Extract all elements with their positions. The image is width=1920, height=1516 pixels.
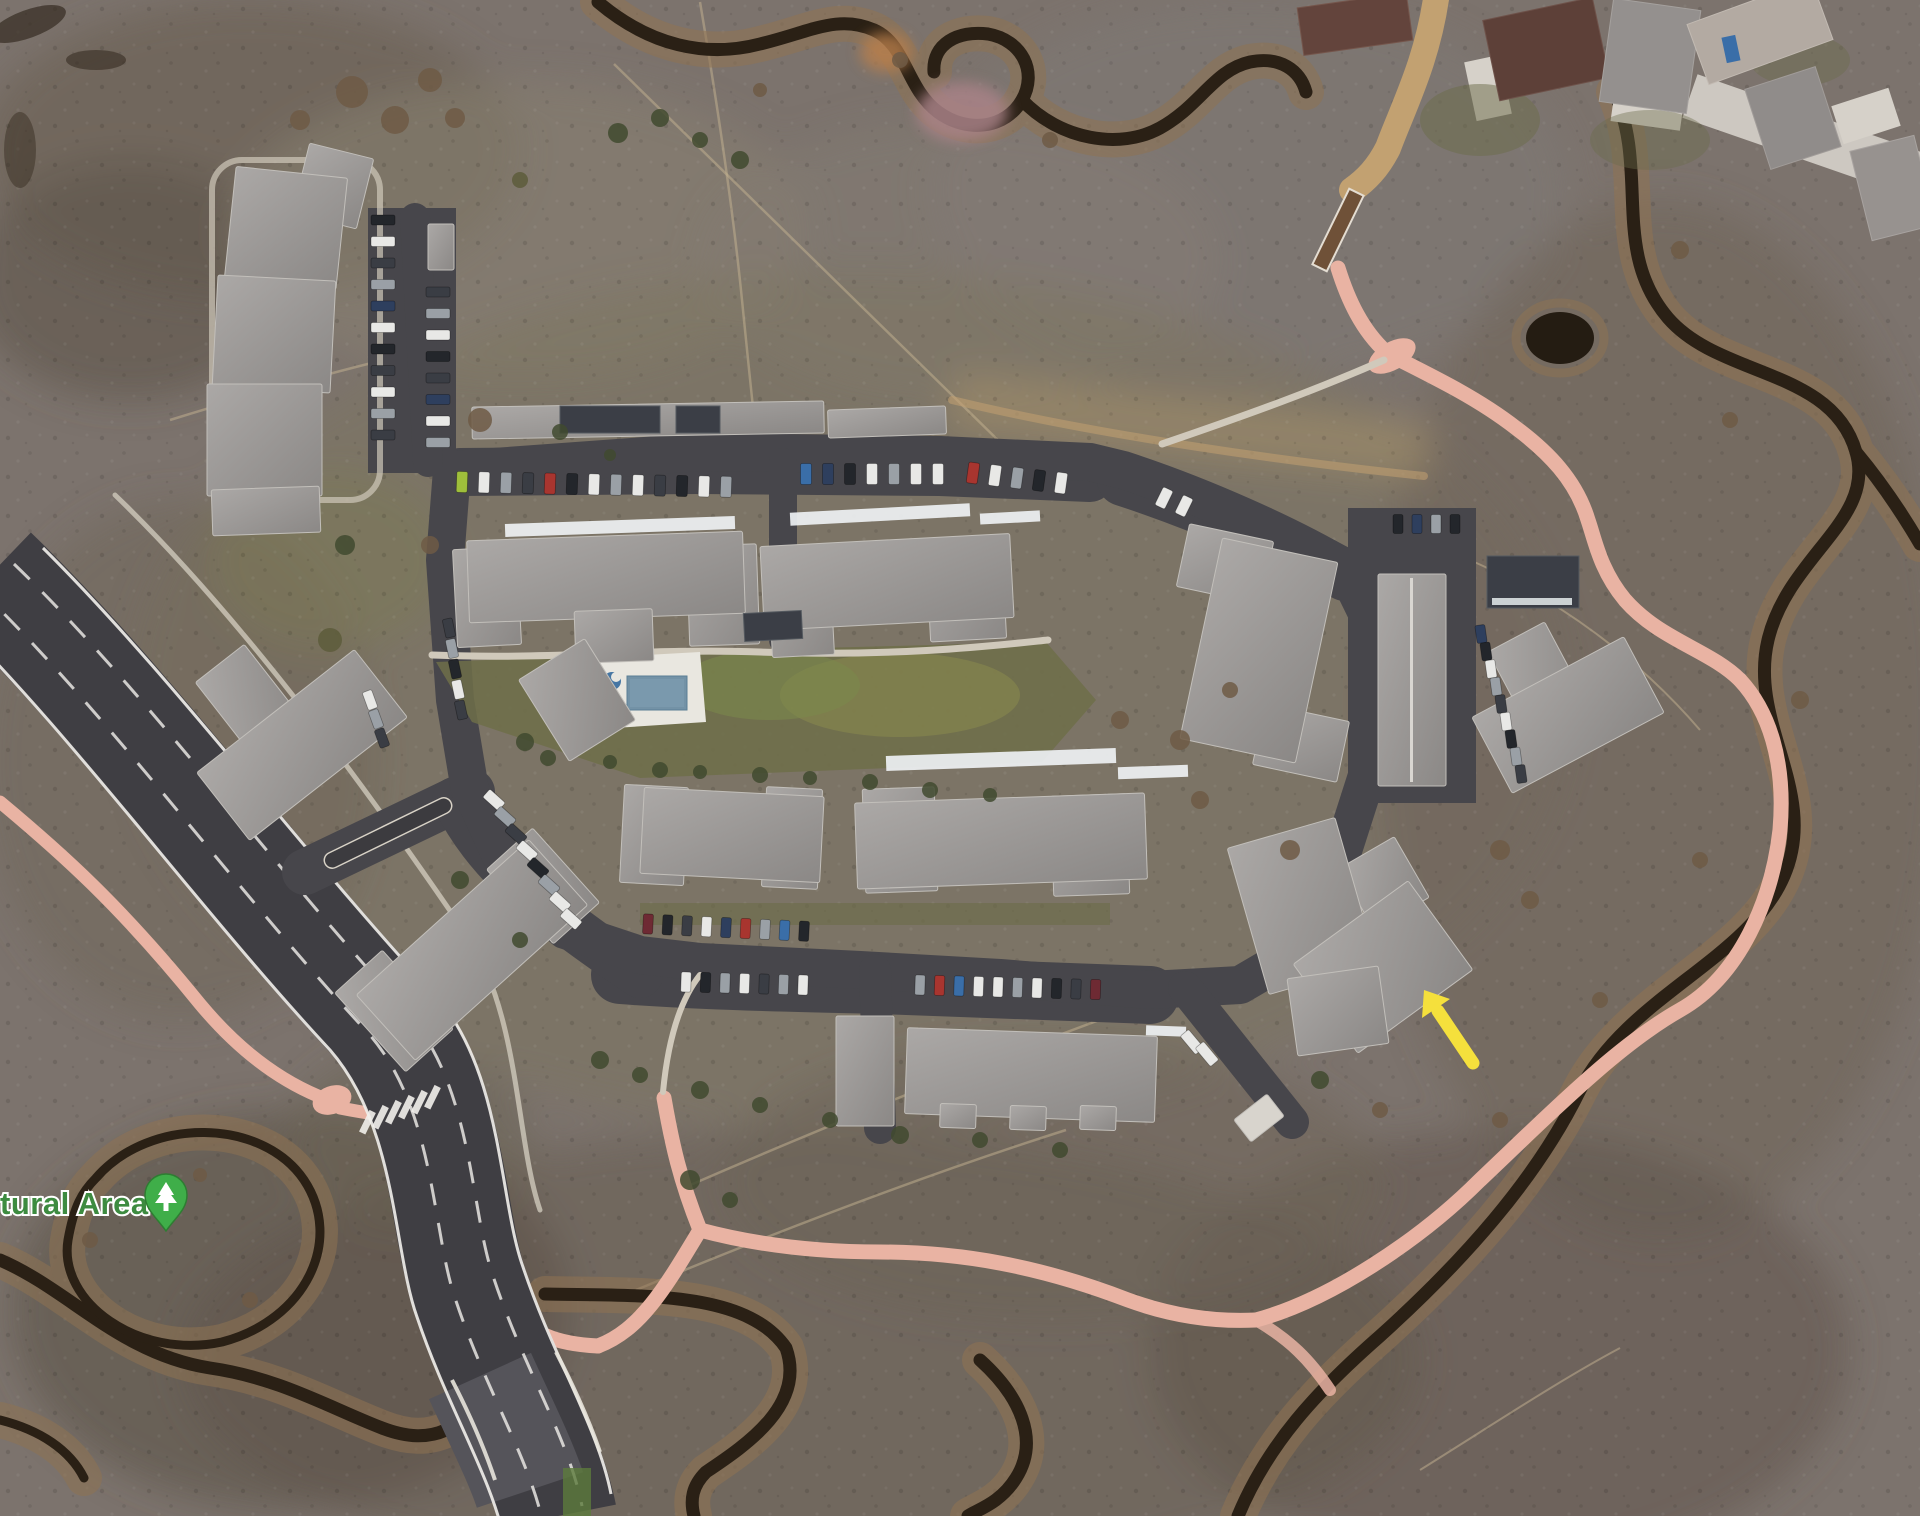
tree <box>891 1126 909 1144</box>
parked-car <box>988 464 1002 486</box>
parked-car <box>681 916 692 936</box>
parked-car <box>522 473 534 494</box>
parked-car <box>867 464 878 485</box>
tree <box>1490 840 1510 860</box>
parked-car <box>845 464 856 485</box>
parked-car <box>739 973 750 993</box>
tree <box>1170 730 1190 750</box>
tree <box>822 1112 838 1128</box>
parked-car <box>915 975 926 995</box>
parked-car <box>371 301 395 311</box>
condo-building <box>855 787 1148 897</box>
parked-car <box>801 464 812 485</box>
tree <box>1222 682 1238 698</box>
parked-car <box>1412 515 1422 534</box>
tree <box>512 932 528 948</box>
tree <box>608 123 628 143</box>
parked-car <box>1485 659 1497 678</box>
parked-car <box>778 974 789 994</box>
parked-car <box>1515 764 1527 783</box>
tree <box>752 767 768 783</box>
tree <box>972 1132 988 1148</box>
tree <box>651 109 669 127</box>
parked-car <box>954 976 965 996</box>
parked-car <box>371 237 395 247</box>
tree <box>418 68 442 92</box>
parked-car <box>426 438 450 448</box>
parked-car <box>654 475 666 496</box>
parked-car <box>759 974 770 994</box>
tree <box>1521 891 1539 909</box>
tree <box>540 750 556 766</box>
parked-car <box>934 975 945 995</box>
tree <box>552 424 568 440</box>
parked-car <box>889 464 900 485</box>
parked-car <box>1071 979 1082 999</box>
parked-car <box>544 473 556 494</box>
parked-car <box>1012 977 1023 997</box>
tree <box>1280 840 1300 860</box>
parked-car <box>426 395 450 405</box>
tree <box>1111 711 1129 729</box>
condo-building <box>619 784 824 889</box>
tree <box>336 76 368 108</box>
parked-car <box>740 918 751 938</box>
parked-car <box>698 476 710 497</box>
tree <box>445 108 465 128</box>
tree <box>1311 1071 1329 1089</box>
parked-car <box>1490 677 1502 696</box>
tree <box>603 755 617 769</box>
tree <box>892 52 908 68</box>
tree <box>922 782 938 798</box>
parked-car <box>720 476 732 497</box>
parked-car <box>1032 978 1043 998</box>
parked-car <box>1510 747 1522 766</box>
parked-car <box>1051 978 1062 998</box>
tree <box>1791 691 1809 709</box>
tree <box>983 788 997 802</box>
tree <box>242 1292 258 1308</box>
tree <box>731 151 749 169</box>
parked-car <box>759 919 770 939</box>
tree <box>722 1192 738 1208</box>
tree <box>193 1168 207 1182</box>
parked-car <box>701 916 712 936</box>
parked-car <box>676 475 688 496</box>
tree <box>752 1097 768 1113</box>
parked-car <box>911 464 922 485</box>
parked-car <box>371 323 395 333</box>
parked-car <box>632 475 644 496</box>
tree <box>1692 852 1708 868</box>
parked-car <box>1393 515 1403 534</box>
parked-car <box>662 915 673 935</box>
parked-car <box>993 977 1004 997</box>
tree <box>1722 412 1738 428</box>
road-bridge <box>480 1376 530 1490</box>
tree <box>803 771 817 785</box>
parked-car <box>1475 624 1487 643</box>
tree <box>468 408 492 432</box>
tree <box>512 172 528 188</box>
parked-car <box>478 472 490 493</box>
parked-car <box>371 409 395 419</box>
tree <box>1492 1112 1508 1128</box>
tree <box>381 106 409 134</box>
parked-car <box>933 464 944 485</box>
parked-car <box>1032 469 1046 491</box>
map-canvas[interactable]: tural Area <box>0 0 1920 1516</box>
parked-car <box>426 352 450 362</box>
parked-car <box>966 462 980 484</box>
park-label[interactable]: tural Area <box>0 1186 149 1221</box>
parked-car <box>642 914 653 934</box>
tree <box>318 628 342 652</box>
tree <box>1052 1142 1068 1158</box>
parked-car <box>371 387 395 397</box>
tree <box>680 1170 700 1190</box>
tree <box>1592 992 1608 1008</box>
garage-building <box>1378 574 1446 786</box>
parked-car <box>720 917 731 937</box>
tree <box>82 1232 98 1248</box>
parked-car <box>1054 472 1068 494</box>
tree <box>1372 1102 1388 1118</box>
parked-car <box>426 309 450 319</box>
parked-car <box>1495 694 1507 713</box>
tree <box>290 110 310 130</box>
parked-car <box>798 921 809 941</box>
parked-car <box>500 472 512 493</box>
tree <box>451 871 469 889</box>
parked-car <box>973 976 984 996</box>
parked-car <box>588 474 600 495</box>
parked-car <box>798 975 809 995</box>
tree <box>516 733 534 751</box>
satellite-map[interactable]: tural Area <box>0 0 1920 1516</box>
parked-car <box>426 330 450 340</box>
parked-car <box>1450 515 1460 534</box>
tree <box>692 132 708 148</box>
tree <box>591 1051 609 1069</box>
tree <box>652 762 668 778</box>
parked-car <box>779 920 790 940</box>
parked-car <box>371 366 395 376</box>
tree <box>335 535 355 555</box>
tree <box>753 83 767 97</box>
tree <box>693 765 707 779</box>
parked-car <box>1480 642 1492 661</box>
tree <box>1671 241 1689 259</box>
parked-car <box>1500 712 1512 731</box>
tree <box>421 536 439 554</box>
parked-car <box>426 416 450 426</box>
condo-building <box>452 531 759 663</box>
parked-car <box>456 471 468 492</box>
tree <box>691 1081 709 1099</box>
parked-car <box>681 972 692 992</box>
parked-car <box>566 473 578 494</box>
parked-car <box>1431 515 1441 534</box>
tree <box>862 774 878 790</box>
parked-car <box>823 464 834 485</box>
parked-car <box>371 215 395 225</box>
parked-car <box>1010 467 1024 489</box>
tree <box>1042 132 1058 148</box>
parked-car <box>610 474 622 495</box>
parked-car <box>1505 729 1517 748</box>
parked-car <box>700 972 711 992</box>
tree <box>1191 791 1209 809</box>
parked-car <box>371 280 395 290</box>
parked-car <box>371 258 395 268</box>
tree <box>604 449 616 461</box>
parked-car <box>426 287 450 297</box>
tree <box>632 1067 648 1083</box>
parked-car <box>1090 979 1101 999</box>
parked-car <box>371 344 395 354</box>
parked-car <box>720 973 731 993</box>
parked-car <box>371 430 395 440</box>
parked-car <box>426 373 450 383</box>
